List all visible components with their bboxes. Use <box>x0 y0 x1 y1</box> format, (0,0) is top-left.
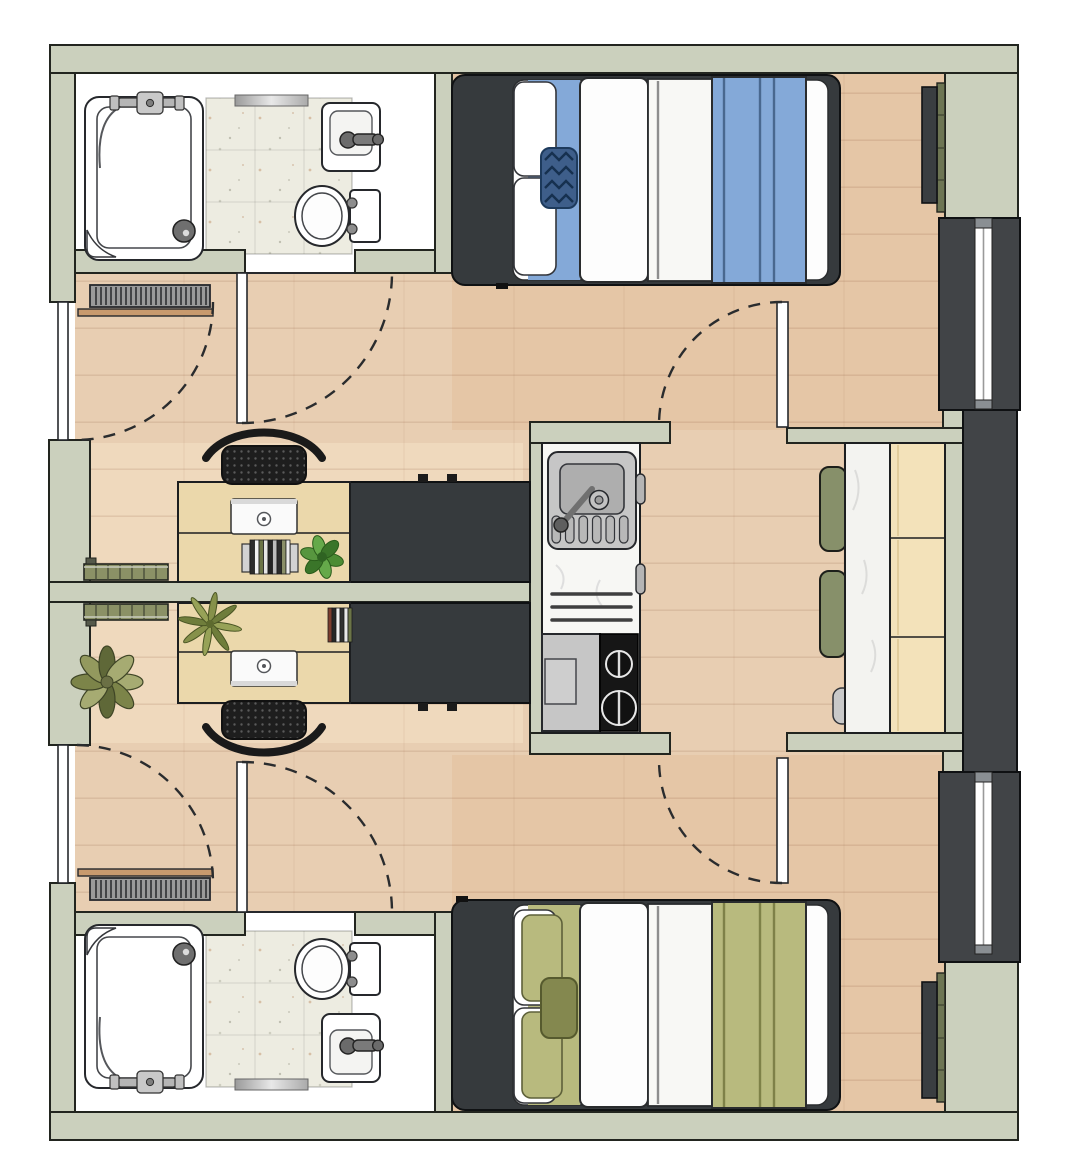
wall-top <box>50 45 1018 73</box>
window-top <box>939 218 1020 410</box>
kitchen-wall-bottom <box>530 733 670 754</box>
desk-top <box>178 482 350 582</box>
books-bottom <box>328 608 352 642</box>
bathroom-bottom-wall-right <box>355 912 435 935</box>
sink-bottom <box>322 1014 383 1082</box>
divider-radiator-top-valve <box>86 558 96 564</box>
tv-bottom-screen <box>922 982 937 1098</box>
wardrobe-top-body <box>350 482 530 582</box>
dining-table-marble <box>845 443 890 733</box>
floorplan-drawing <box>0 0 1071 1175</box>
entry-door-top-leaf <box>58 302 68 440</box>
dining-chair-2 <box>820 571 846 657</box>
bed-top <box>452 75 840 289</box>
kitchen-stove <box>600 634 638 731</box>
laptop-bottom-hinge-edge <box>231 681 297 686</box>
dining-chair-1 <box>820 467 846 551</box>
bedroom-top-door-leaf <box>777 302 788 427</box>
toilet-top-hinge <box>347 198 357 208</box>
kitchen-wall-top <box>530 422 670 443</box>
kitchenette <box>542 443 645 733</box>
wardrobe-bottom <box>350 603 530 711</box>
chair-top-mesh-seat <box>222 446 306 484</box>
bathroom-top-wall-side <box>435 73 452 273</box>
desk-bottom <box>178 592 352 703</box>
wall-right-upper <box>945 73 1018 218</box>
shower-top <box>85 92 203 260</box>
sink-top <box>322 103 383 171</box>
bed-bottom <box>452 896 840 1110</box>
bathroom-bottom-wall-side <box>435 912 452 1112</box>
bed-bottom-cushion <box>541 978 577 1038</box>
bedroom-bottom-door-leaf <box>777 758 788 883</box>
kitchen-appliance-door <box>545 659 576 704</box>
books-top <box>242 540 298 574</box>
book-spines <box>250 540 290 574</box>
chair-bottom-mesh-seat <box>222 701 306 739</box>
wall-bottom <box>50 1112 1018 1140</box>
entry-door-bottom-leaf <box>58 745 68 883</box>
bathroom-top-threshold-strip <box>235 95 308 106</box>
tv-top <box>922 83 945 212</box>
bathroom-bottom-threshold-strip <box>235 1079 308 1090</box>
kitchen-handle-2 <box>636 564 645 594</box>
window-bottom-latch2 <box>975 945 992 954</box>
wardrobe-bottom-body <box>350 603 530 703</box>
book-spines <box>328 608 352 642</box>
wardrobe-top <box>350 474 530 582</box>
kitchen-handle-1 <box>636 474 645 504</box>
dining-cabinet <box>890 443 945 733</box>
window-bottom <box>939 772 1020 962</box>
wall-left-upper <box>50 73 75 302</box>
bookend <box>242 544 250 572</box>
shelf-bottom <box>78 869 213 876</box>
tv-bottom <box>922 973 945 1102</box>
toilet-top-hinge2 <box>347 224 357 234</box>
toilet-top <box>295 186 380 246</box>
divider-radiator-bottom-valve <box>86 620 96 626</box>
wardrobe-bottom-handle-1 <box>418 703 428 711</box>
radiator-top-body <box>90 285 210 307</box>
wardrobe-top-handle-2 <box>447 474 457 482</box>
radiator-bottom-body <box>90 878 210 900</box>
bed-top-foot <box>496 283 508 289</box>
wardrobe-bottom-handle-2 <box>447 703 457 711</box>
bed-bottom-white-duvet <box>580 903 648 1107</box>
facade-panel <box>963 410 1017 772</box>
bed-top-white-duvet <box>580 78 648 282</box>
window-top-latch2 <box>975 400 992 409</box>
bed-bottom-foot <box>456 896 468 902</box>
toilet-bottom-hinge2 <box>347 977 357 987</box>
shower-bottom-drain-dot <box>183 949 189 955</box>
bookend <box>290 544 298 572</box>
bathroom-top-door-leaf <box>237 273 247 423</box>
dining-wall-bottom <box>787 733 963 751</box>
wall-right-lower <box>945 962 1018 1112</box>
radiator-bottom <box>78 869 213 900</box>
dining-wall-top <box>787 428 963 443</box>
dining-nook <box>820 443 945 733</box>
toilet-top-bowl-inner <box>302 193 342 239</box>
shower-top-drain-dot <box>183 230 189 236</box>
shelf-top <box>78 309 213 316</box>
toilet-bottom-bowl-inner <box>302 946 342 992</box>
toilet-bottom <box>295 939 380 999</box>
bathroom-bottom-door-leaf <box>237 762 247 912</box>
toilet-bottom-tank <box>350 943 380 995</box>
toilet-bottom-hinge <box>347 951 357 961</box>
toilet-top-tank <box>350 190 380 242</box>
window-top-latch <box>975 218 992 228</box>
kitchen-faucet-base <box>554 518 568 532</box>
window-bottom-latch <box>975 772 992 782</box>
floorplan-page <box>0 0 1071 1175</box>
wall-left-lower <box>50 883 75 1112</box>
wardrobe-top-handle-1 <box>418 474 428 482</box>
radiator-top <box>78 285 213 316</box>
floor-plant <box>71 646 143 718</box>
tv-top-screen <box>922 87 937 203</box>
wall-center-divider <box>49 582 542 602</box>
kitchen-wall-back <box>530 443 542 733</box>
bathroom-top-wall-right <box>355 250 435 273</box>
kitchen-sink <box>548 452 636 549</box>
shower-bottom <box>85 925 203 1093</box>
laptop-top-hinge-edge <box>231 499 297 504</box>
